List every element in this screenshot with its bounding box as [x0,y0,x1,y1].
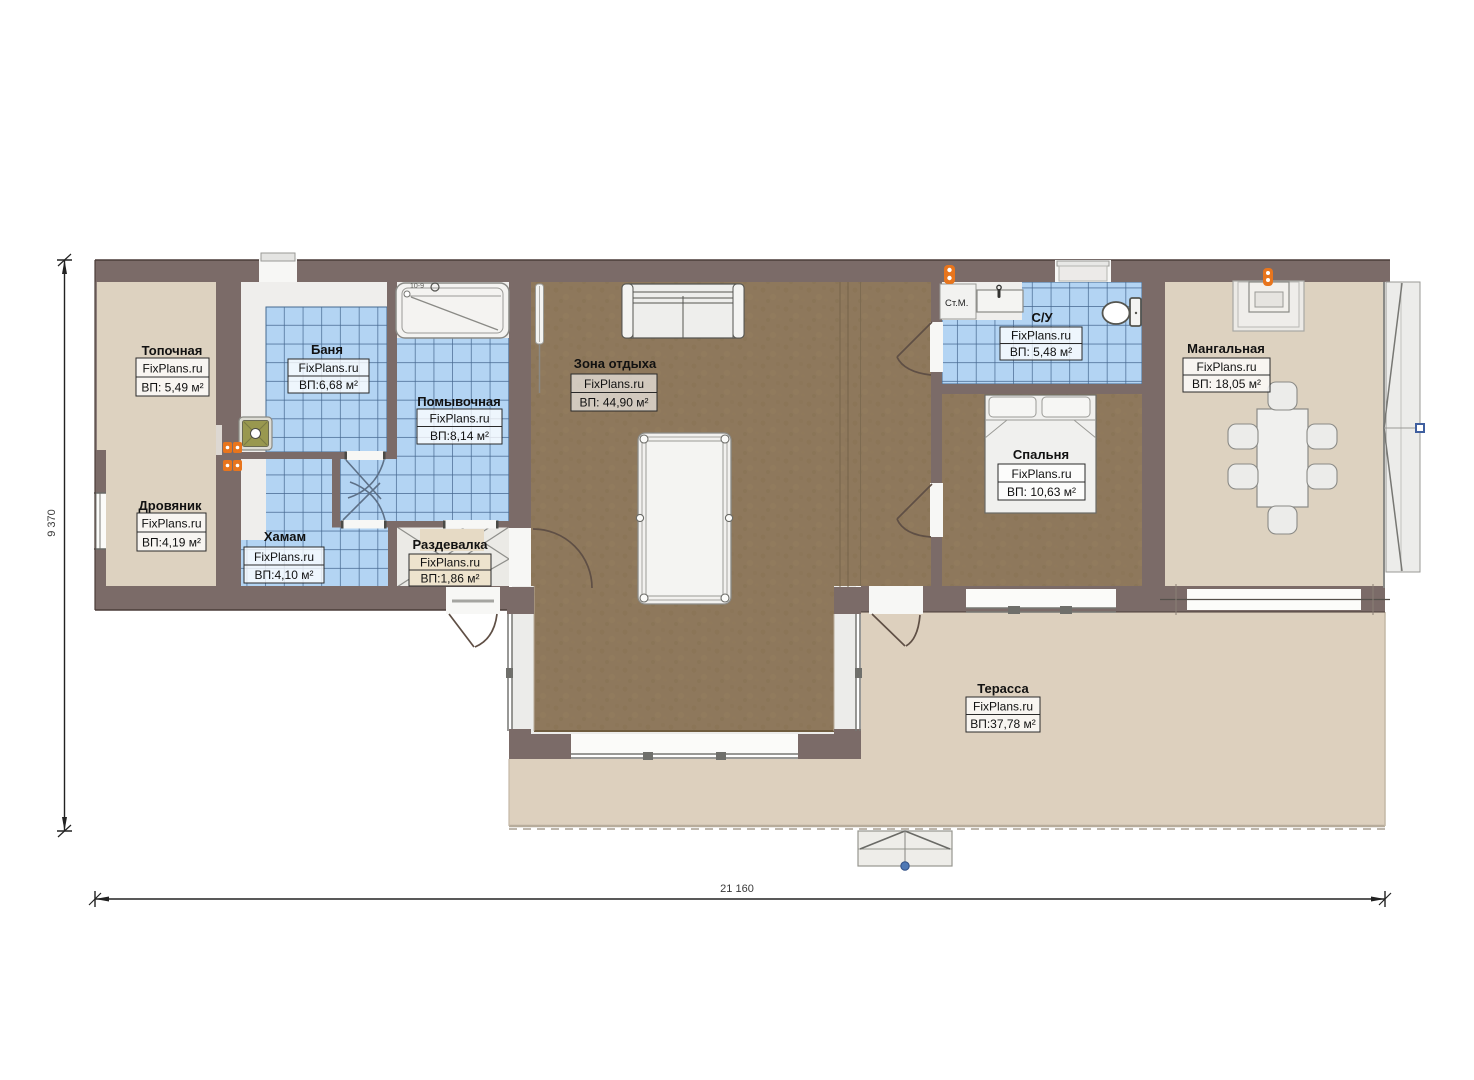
svg-text:ВП:6,68 м²: ВП:6,68 м² [299,378,358,392]
svg-text:Помывочная: Помывочная [417,394,500,409]
svg-text:FixPlans.ru: FixPlans.ru [1011,467,1071,481]
svg-text:ВП: 18,05 м²: ВП: 18,05 м² [1192,377,1261,391]
svg-text:FixPlans.ru: FixPlans.ru [254,550,314,564]
svg-text:FixPlans.ru: FixPlans.ru [973,700,1033,714]
svg-text:Хамам: Хамам [264,529,306,544]
svg-text:FixPlans.ru: FixPlans.ru [1011,329,1071,343]
svg-text:Раздевалка: Раздевалка [413,537,489,552]
svg-text:10-9: 10-9 [410,283,424,290]
svg-text:FixPlans.ru: FixPlans.ru [1196,360,1256,374]
svg-text:ВП:4,10 м²: ВП:4,10 м² [255,568,314,582]
svg-text:Спальня: Спальня [1013,447,1069,462]
svg-text:FixPlans.ru: FixPlans.ru [429,412,489,426]
svg-text:21 160: 21 160 [720,883,754,895]
svg-text:FixPlans.ru: FixPlans.ru [142,362,202,376]
svg-text:Зона отдыха: Зона отдыха [574,356,657,371]
svg-text:ВП:1,86 м²: ВП:1,86 м² [421,572,480,586]
svg-text:ВП: 44,90 м²: ВП: 44,90 м² [580,396,649,410]
svg-text:9 370: 9 370 [46,509,58,537]
svg-text:ВП:37,78 м²: ВП:37,78 м² [970,717,1036,731]
svg-text:Мангальная: Мангальная [1187,341,1265,356]
svg-text:FixPlans.ru: FixPlans.ru [141,517,201,531]
svg-text:Дровяник: Дровяник [139,498,202,513]
svg-text:ВП: 10,63 м²: ВП: 10,63 м² [1007,485,1076,499]
svg-text:FixPlans.ru: FixPlans.ru [584,377,644,391]
svg-text:FixPlans.ru: FixPlans.ru [420,556,480,570]
svg-text:ВП: 5,48 м²: ВП: 5,48 м² [1010,345,1072,359]
svg-text:FixPlans.ru: FixPlans.ru [298,361,358,375]
svg-text:Топочная: Топочная [142,343,203,358]
svg-text:ВП: 5,49 м²: ВП: 5,49 м² [141,381,203,395]
svg-text:Ст.М.: Ст.М. [945,298,968,309]
svg-text:Терасса: Терасса [977,681,1029,696]
svg-text:С/У: С/У [1031,310,1053,325]
svg-text:ВП:4,19 м²: ВП:4,19 м² [142,536,201,550]
svg-text:Баня: Баня [311,342,343,357]
svg-text:ВП:8,14 м²: ВП:8,14 м² [430,429,489,443]
